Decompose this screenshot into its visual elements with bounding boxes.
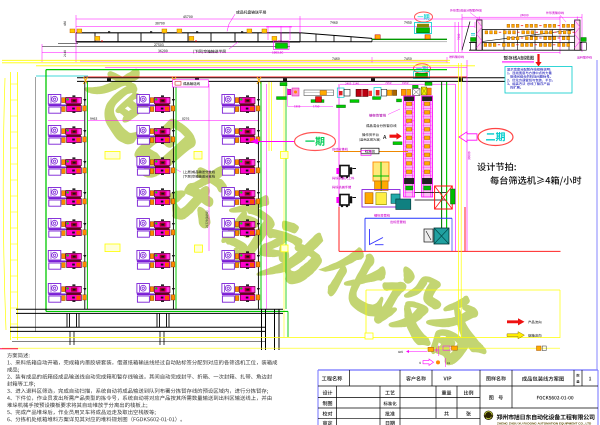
svg-text:ZHENG ZHOU XU RI DONG AUTOMATI: ZHENG ZHOU XU RI DONG AUTOMATION EQUIPME… <box>497 422 592 425</box>
